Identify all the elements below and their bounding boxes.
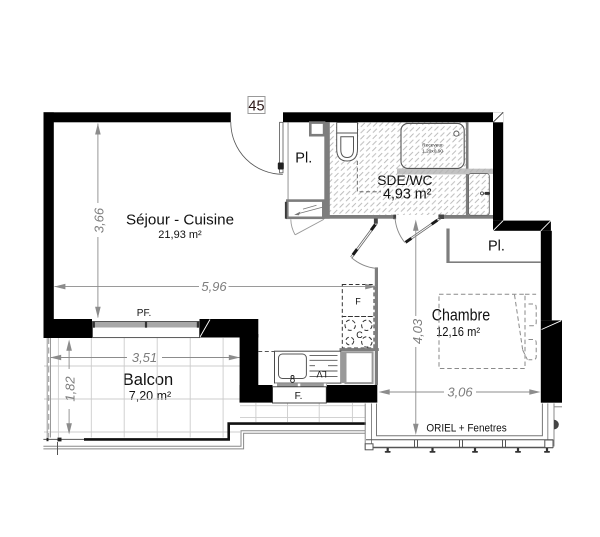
svg-text:PF.: PF. xyxy=(137,308,151,319)
svg-text:Séjour - Cuisine: Séjour - Cuisine xyxy=(126,212,234,229)
svg-text:3,66: 3,66 xyxy=(92,207,107,233)
svg-text:4,93 m²: 4,93 m² xyxy=(383,186,432,202)
svg-text:LV: LV xyxy=(317,369,327,379)
svg-text:45: 45 xyxy=(248,98,264,114)
svg-text:1,82: 1,82 xyxy=(63,376,78,402)
svg-text:Balcon: Balcon xyxy=(123,371,173,389)
svg-text:7,20 m²: 7,20 m² xyxy=(129,389,171,403)
svg-text:3,06: 3,06 xyxy=(447,385,473,400)
svg-text:Pl.: Pl. xyxy=(295,150,312,166)
svg-text:F.: F. xyxy=(295,391,303,402)
svg-text:Chambre: Chambre xyxy=(432,306,491,325)
svg-text:Receveur: Receveur xyxy=(422,143,443,149)
svg-text:21,93 m²: 21,93 m² xyxy=(158,229,202,241)
svg-text:C: C xyxy=(356,330,363,340)
svg-text:ORIEL + Fenetres: ORIEL + Fenetres xyxy=(426,422,506,434)
svg-text:F: F xyxy=(355,297,361,307)
svg-text:12,16 m²: 12,16 m² xyxy=(436,325,480,339)
svg-text:1,20x0,90: 1,20x0,90 xyxy=(422,149,443,155)
svg-text:4,03: 4,03 xyxy=(410,318,425,344)
svg-text:3,51: 3,51 xyxy=(132,350,157,365)
svg-text:5,96: 5,96 xyxy=(201,279,227,294)
svg-text:Pl.: Pl. xyxy=(488,239,505,255)
